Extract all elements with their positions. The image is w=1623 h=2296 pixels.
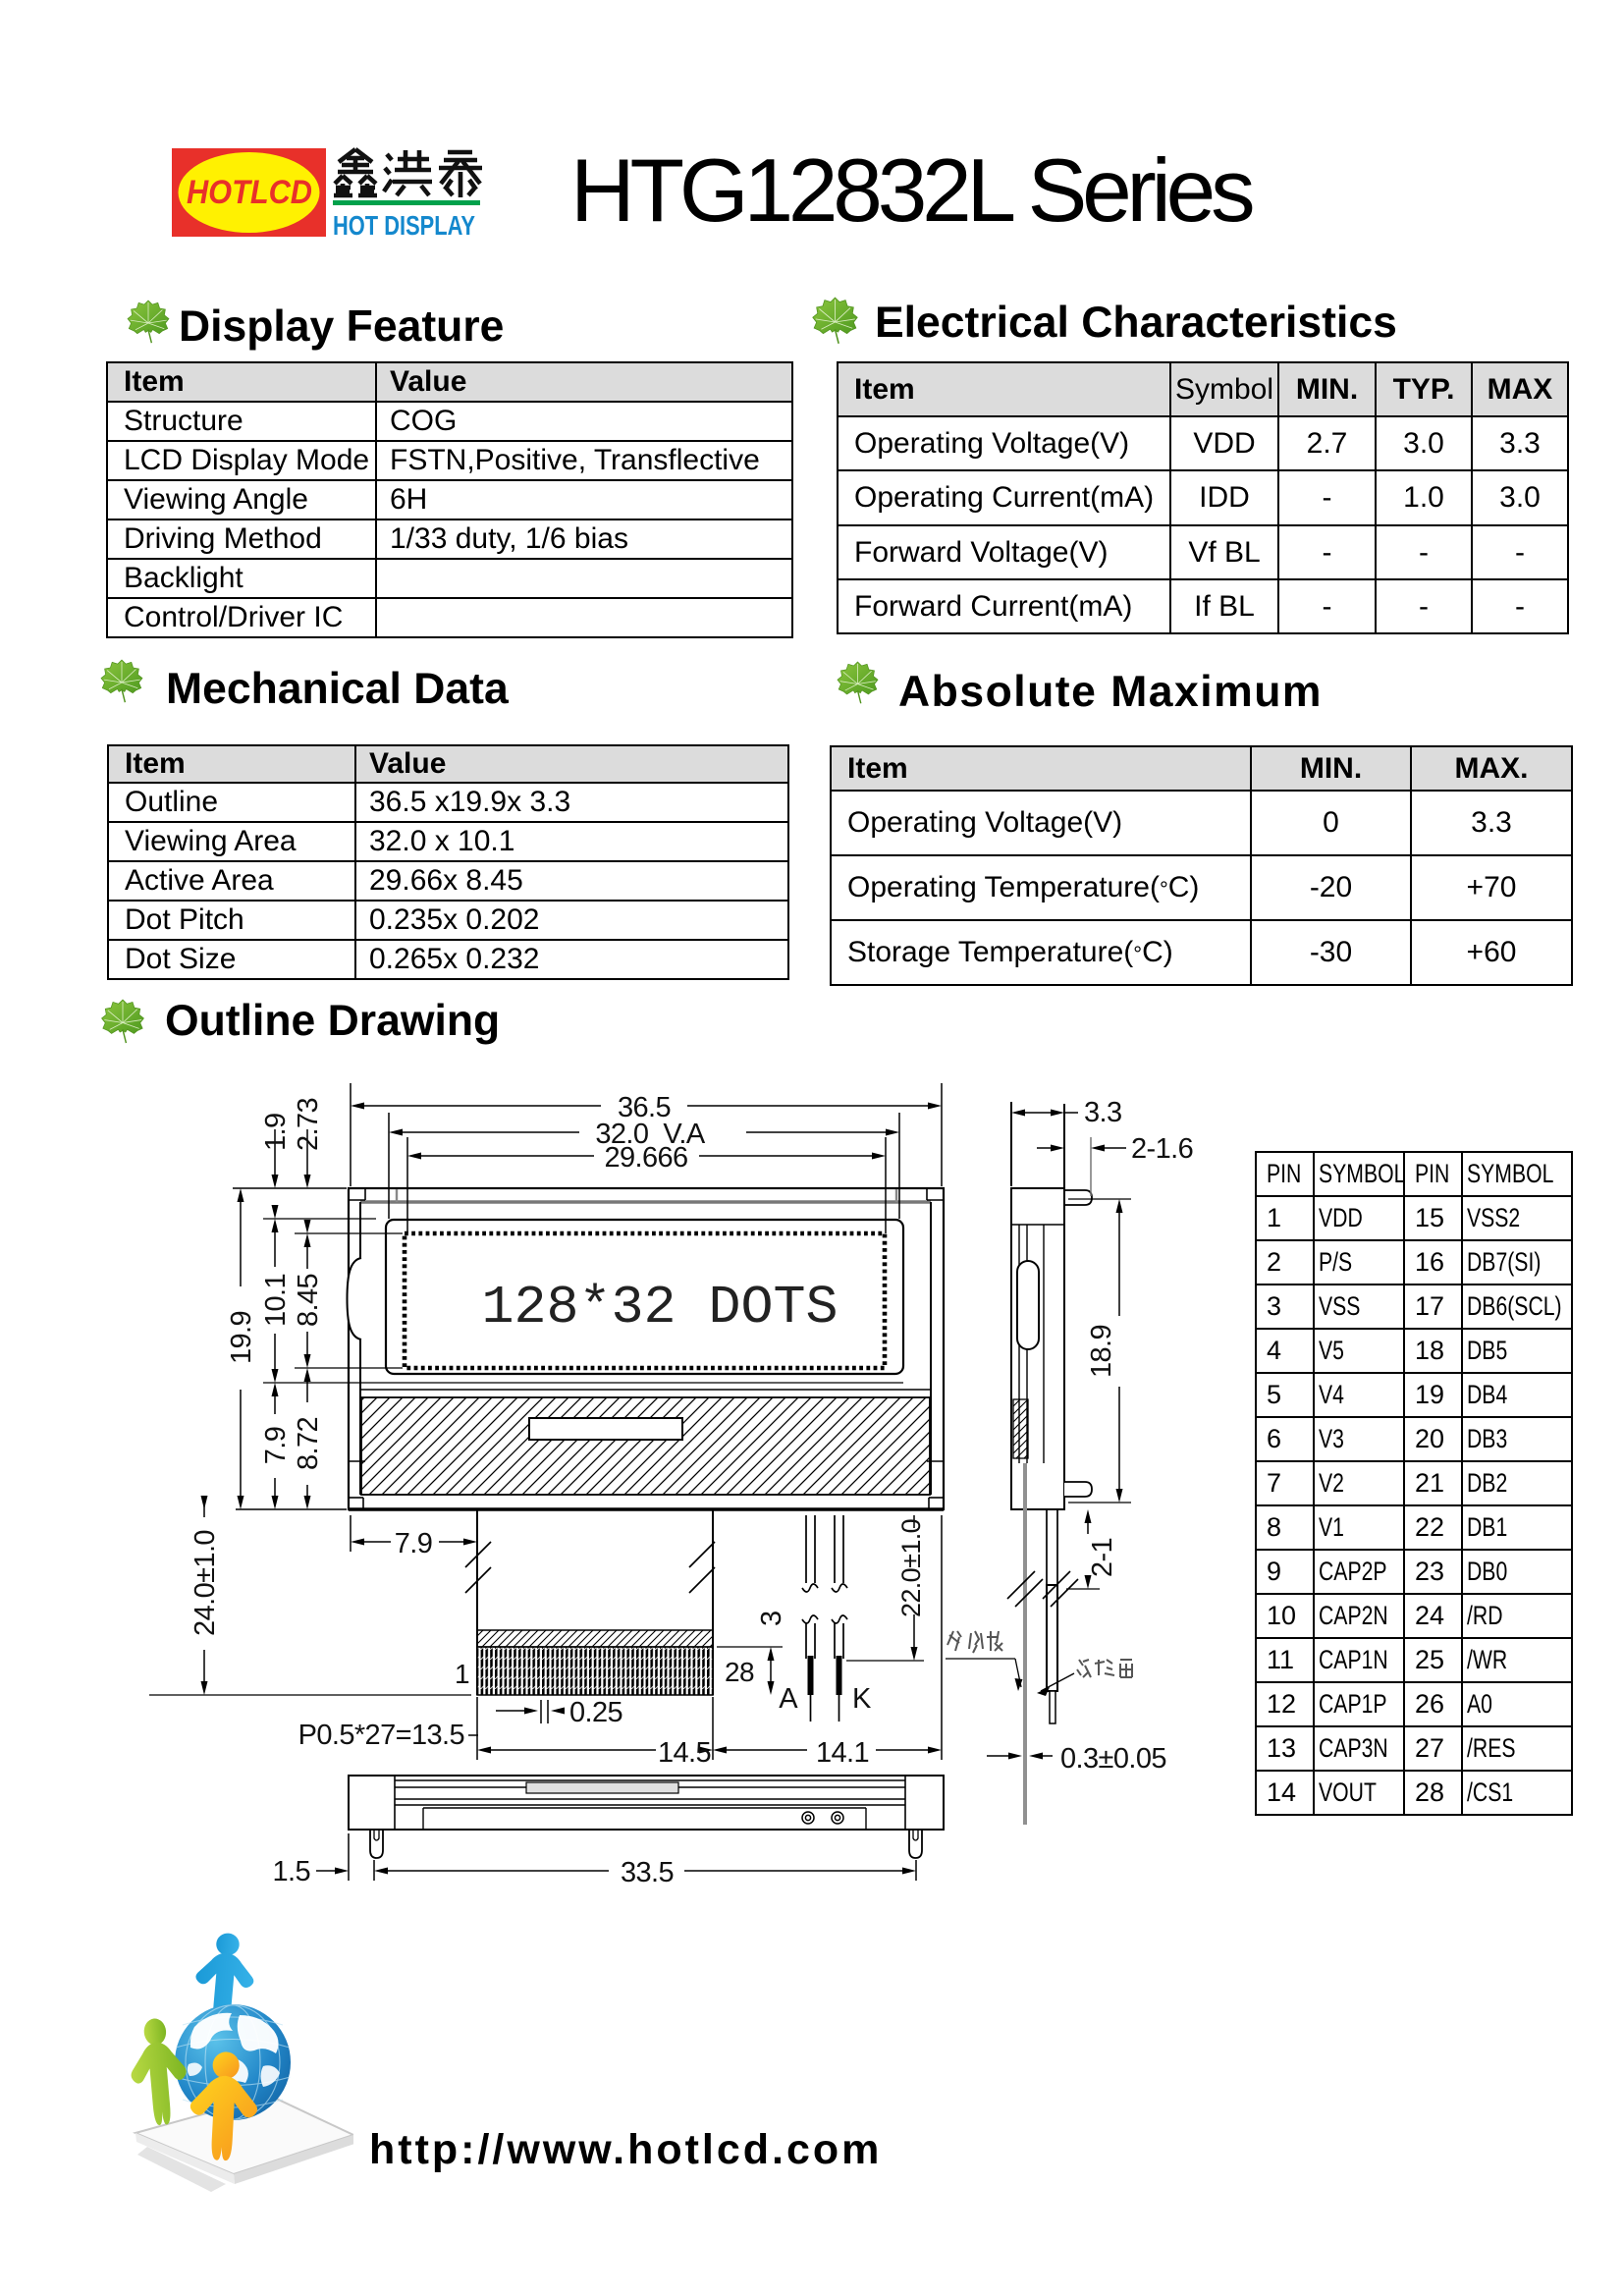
svg-text:1.5: 1.5 (272, 1856, 310, 1887)
svg-text:128*32 DOTS: 128*32 DOTS (481, 1277, 838, 1339)
svg-text:K: K (852, 1683, 872, 1715)
svg-text:19.9: 19.9 (226, 1311, 257, 1364)
svg-text:7.9: 7.9 (260, 1427, 292, 1465)
svg-text:2-1: 2-1 (1087, 1538, 1118, 1577)
svg-text:14.5: 14.5 (658, 1737, 711, 1769)
svg-text:29.666: 29.666 (604, 1142, 687, 1174)
svg-text:24.0±1.0: 24.0±1.0 (189, 1530, 221, 1636)
svg-text:14.1: 14.1 (816, 1737, 869, 1769)
svg-text:3.3: 3.3 (1084, 1097, 1122, 1128)
svg-text:3: 3 (756, 1611, 787, 1626)
svg-text:10.1: 10.1 (260, 1274, 292, 1327)
svg-text:2.73: 2.73 (293, 1098, 324, 1151)
svg-text:7.9: 7.9 (395, 1528, 433, 1559)
svg-text:18.9: 18.9 (1086, 1325, 1117, 1378)
svg-text:22.0±1.0: 22.0±1.0 (896, 1519, 926, 1617)
svg-text:1: 1 (455, 1659, 469, 1689)
svg-text:8.72: 8.72 (293, 1417, 324, 1470)
svg-text:HOTLCD: HOTLCD (187, 174, 312, 211)
svg-text:0.3±0.05: 0.3±0.05 (1060, 1743, 1166, 1775)
svg-text:8.45: 8.45 (293, 1274, 324, 1327)
svg-text:28: 28 (725, 1657, 754, 1687)
svg-text:33.5: 33.5 (621, 1857, 674, 1888)
svg-text:0.25: 0.25 (569, 1697, 622, 1728)
svg-text:P0.5*27=13.5: P0.5*27=13.5 (298, 1720, 464, 1751)
svg-text:2-1.6: 2-1.6 (1131, 1133, 1193, 1165)
svg-text:1.9: 1.9 (260, 1113, 292, 1151)
svg-text:HOT DISPLAY: HOT DISPLAY (333, 210, 475, 241)
svg-text:A: A (779, 1683, 798, 1715)
